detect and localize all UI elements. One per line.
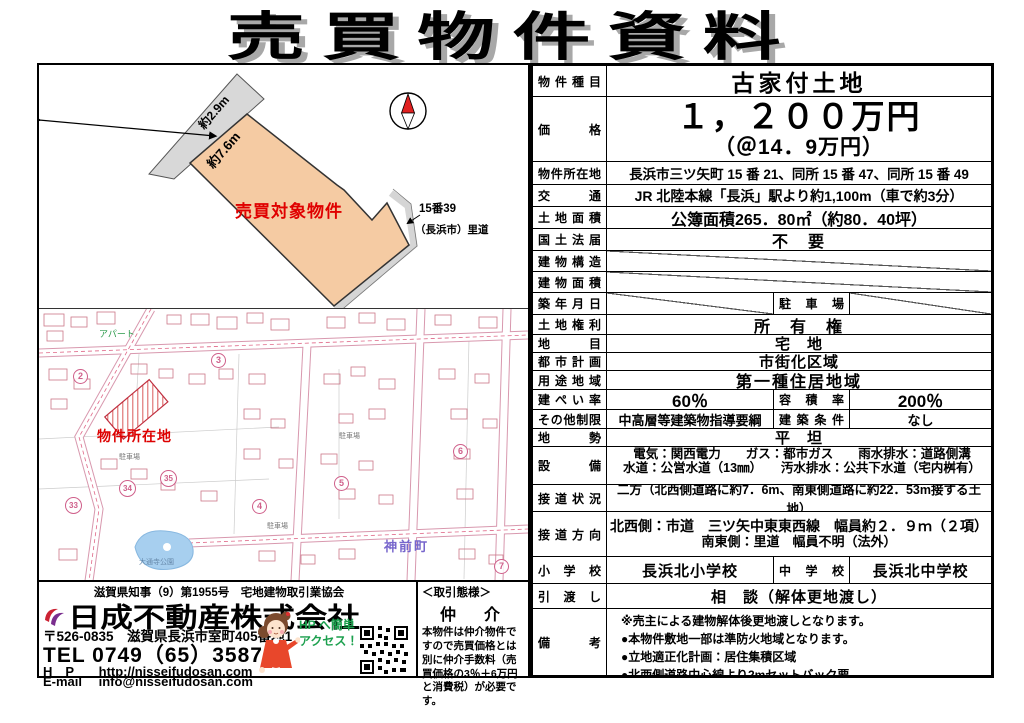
property-type-label: 物件種目: [538, 73, 601, 90]
qr-code: [360, 626, 408, 674]
row-handover: 引渡し 相 談（解体更地渡し）: [533, 584, 991, 609]
utilities-label: 設備: [538, 457, 601, 474]
remarks-line2: ●本物件敷地一部は準防火地域となります。: [621, 630, 983, 648]
property-type-label-cell: 物件種目: [533, 66, 607, 96]
utilities-line2: 水道：公営水道（13㎜） 汚水排水：公共下水道（宅内桝有）: [623, 461, 981, 475]
remarks-value-cell: ※売主による建物解体後更地渡しとなります。 ●本物件敷地一部は準防火地域となりま…: [607, 609, 991, 675]
utilities-value-cell: 電気：関西電力 ガス：都市ガス 雨水排水：道路側溝 水道：公営水道（13㎜） 汚…: [607, 447, 991, 484]
city-planning-value: 市街化区域: [607, 353, 991, 370]
land-area-label: 土地面積: [538, 209, 601, 226]
land-rights-label-cell: 土地権利: [533, 315, 607, 334]
map-property-label: 物件所在地: [97, 426, 172, 446]
land-category-label: 地目: [538, 335, 601, 352]
row-use-district: 用途地域 第一種住居地域: [533, 371, 991, 390]
hp-access-line2: アクセス！: [299, 634, 358, 650]
price-label: 価格: [538, 121, 601, 138]
road-direction-value-cell: 北西側：市道 三ツ矢中東東西線 幅員約２．９ｍ（２項） 南東側：里道 幅員不明（…: [607, 512, 991, 556]
map-parking-label-1: 駐車場: [119, 452, 140, 462]
remarks-line3: ●立地適正化計画：居住集積区域: [621, 648, 983, 666]
company-logo-icon: [42, 604, 68, 628]
mascot-girl-illustration: [252, 610, 300, 676]
elementary-school-label: 小学校: [538, 562, 601, 579]
property-type-value: 古家付土地: [607, 66, 991, 96]
agency-section: 滋賀県知事（9）第1955号 宅地建物取引業協会 日成不動産株式会社 〒526-…: [39, 582, 416, 678]
remarks-line1: ※売主による建物解体後更地渡しとなります。: [621, 612, 983, 630]
map-badge-3: 3: [211, 353, 226, 368]
property-table: 物件種目 古家付土地 価格 １，２００万円 （＠14．9万円） 物件所在地 長浜…: [530, 63, 994, 678]
location-value: 長浜市三ツ矢町 15 番 21、同所 15 番 47、同所 15 番 49: [607, 162, 991, 184]
brokerage-type: 仲 介: [422, 601, 524, 625]
coverage-label-cell: 建ぺい率: [533, 390, 607, 409]
row-remarks: 備考 ※売主による建物解体後更地渡しとなります。 ●本物件敷地一部は準防火地域と…: [533, 609, 991, 675]
access-label: 交通: [538, 187, 601, 204]
map-badge-4: 4: [252, 499, 267, 514]
remarks-label: 備考: [538, 634, 601, 651]
building-structure-label: 建物構造: [538, 253, 601, 270]
row-land-area: 土地面積 公簿面積265．80㎡（約80．40坪）: [533, 207, 991, 229]
row-city-planning: 都市計画 市街化区域: [533, 353, 991, 371]
flyer-page: 売買物件資料 約2.9m 約7.6m: [0, 0, 1024, 723]
use-district-label: 用途地域: [538, 372, 601, 389]
land-area-value: 公簿面積265．80㎡（約80．40坪）: [607, 207, 991, 228]
hp-access-note: HP へ簡単 アクセス！: [299, 618, 358, 649]
row-access: 交通 JR 北陸本線「長浜」駅より約1,100m（車で約3分）: [533, 185, 991, 207]
remarks-lines: ※売主による建物解体後更地渡しとなります。 ●本物件敷地一部は準防火地域となりま…: [615, 609, 989, 675]
left-panel: 約2.9m 約7.6m 売買対象物件 15番39 （長浜市）里道: [37, 63, 530, 678]
map-badge-35: 35: [160, 470, 177, 487]
floor-ratio-value: 200％: [850, 390, 991, 409]
title-bar: 売買物件資料: [0, 2, 1024, 62]
use-district-value: 第一種住居地域: [607, 371, 991, 389]
road-direction-label-cell: 接道方向: [533, 512, 607, 556]
building-area-label-cell: 建物面積: [533, 272, 607, 292]
parcel-label: 売買対象物件: [235, 201, 343, 221]
price-unit-value: （＠14．9万円）: [714, 136, 884, 160]
map-parking-label-2: 駐車場: [339, 431, 360, 441]
row-land-act: 国土法届 不 要: [533, 229, 991, 251]
built-date-value: [607, 293, 773, 314]
map-town-label: 神前町: [384, 536, 429, 555]
building-conditions-label-cell: 建築条件: [773, 410, 850, 428]
remarks-label-cell: 備考: [533, 609, 607, 675]
map-badge-5: 5: [334, 476, 349, 491]
road-direction-line1: 北西側：市道 三ツ矢中東東西線 幅員約２．９ｍ（２項）: [610, 518, 988, 534]
floor-ratio-label-cell: 容積率: [773, 390, 850, 409]
built-date-label: 築年月日: [538, 295, 601, 312]
map-badge-2: 2: [73, 369, 88, 384]
row-price: 価格 １，２００万円 （＠14．9万円）: [533, 97, 991, 162]
map-badge-7: 7: [494, 559, 509, 574]
map-parking-label-3: 駐車場: [267, 521, 288, 531]
location-label-cell: 物件所在地: [533, 162, 607, 184]
compass-icon: [390, 93, 426, 129]
use-district-label-cell: 用途地域: [533, 371, 607, 389]
floor-ratio-label: 容積率: [779, 391, 844, 408]
map-badge-33: 33: [65, 497, 82, 514]
location-label: 物件所在地: [538, 165, 601, 182]
road-frontage-label-cell: 接道状況: [533, 485, 607, 511]
row-coverage-ratio: 建ぺい率 60％ 容積率 200％: [533, 390, 991, 410]
plot-diagram-svg: 約2.9m 約7.6m 売買対象物件 15番39 （長浜市）里道: [39, 65, 528, 308]
row-utilities: 設備 電気：関西電力 ガス：都市ガス 雨水排水：道路側溝 水道：公営水道（13㎜…: [533, 447, 991, 485]
land-rights-value: 所 有 権: [607, 315, 991, 334]
row-building-area: 建物面積: [533, 272, 991, 293]
building-area-value: [607, 272, 991, 292]
handover-label: 引渡し: [538, 588, 601, 605]
handover-value: 相 談（解体更地渡し）: [607, 584, 991, 608]
parking-label-cell: 駐車場: [773, 293, 850, 314]
email-address: info@nisseifudosan.com: [99, 674, 253, 689]
access-value: JR 北陸本線「長浜」駅より約1,100m（車で約3分）: [607, 185, 991, 206]
row-property-type: 物件種目 古家付土地: [533, 66, 991, 97]
row-terrain: 地勢 平 坦: [533, 429, 991, 447]
price-value: １，２００万円: [677, 98, 922, 136]
plot-diagram: 約2.9m 約7.6m 売買対象物件 15番39 （長浜市）里道: [39, 65, 528, 308]
building-area-label: 建物面積: [538, 274, 601, 291]
ridou-number-label: 15番39: [419, 201, 456, 215]
location-map: 物件所在地 神前町 アパート 大通寺公園 駐車場 駐車場 駐車場 2 3 4 5…: [39, 308, 528, 580]
row-land-category: 地目 宅 地: [533, 335, 991, 353]
bottom-strip: 滋賀県知事（9）第1955号 宅地建物取引業協会 日成不動産株式会社 〒526-…: [39, 580, 528, 676]
land-act-value: 不 要: [607, 229, 991, 250]
row-road-frontage: 接道状況 二方（北西側道路に約7．6m、南東側道路に約22．53m接する土地）: [533, 485, 991, 512]
row-location: 物件所在地 長浜市三ツ矢町 15 番 21、同所 15 番 47、同所 15 番…: [533, 162, 991, 185]
building-structure-value: [607, 251, 991, 271]
utilities-line1: 電気：関西電力 ガス：都市ガス 雨水排水：道路側溝: [633, 447, 971, 461]
road-direction-label: 接道方向: [538, 526, 601, 543]
land-category-value: 宅 地: [607, 335, 991, 352]
building-conditions-label: 建築条件: [779, 411, 844, 428]
junior-high-label-cell: 中学校: [773, 557, 850, 583]
road-width-arrow: [39, 120, 215, 136]
elementary-school-value: 長浜北小学校: [607, 557, 773, 583]
map-badge-34: 34: [119, 480, 136, 497]
parking-value: [850, 293, 991, 314]
terrain-label: 地勢: [538, 429, 601, 446]
map-apartment-label: アパート: [99, 327, 135, 340]
coverage-value: 60％: [607, 390, 773, 409]
junior-high-value: 長浜北中学校: [850, 557, 991, 583]
land-area-label-cell: 土地面積: [533, 207, 607, 228]
brokerage-note: 本物件は仲介物件ですので売買価格とは別に仲介手数料（売買価格の3％＋6万円と消費…: [422, 626, 524, 709]
page-title: 売買物件資料: [227, 0, 798, 70]
terrain-label-cell: 地勢: [533, 429, 607, 446]
row-other-restrictions: その他制限 中高層等建築物指導要綱 建築条件 なし: [533, 410, 991, 429]
coverage-label: 建ぺい率: [538, 391, 601, 408]
price-label-cell: 価格: [533, 97, 607, 161]
ridou-owner-label: （長浜市）里道: [415, 223, 489, 236]
land-rights-label: 土地権利: [538, 316, 601, 333]
road-direction-line2: 南東側：里道 幅員不明（法外）: [701, 535, 896, 550]
other-restrictions-value: 中高層等建築物指導要綱: [607, 410, 773, 428]
row-schools: 小学校 長浜北小学校 中学校 長浜北中学校: [533, 557, 991, 584]
land-act-label-cell: 国土法届: [533, 229, 607, 250]
other-restrictions-label-cell: その他制限: [533, 410, 607, 428]
land-act-label: 国土法届: [538, 231, 601, 248]
junior-high-label: 中学校: [779, 562, 844, 579]
remarks-line4: ●北西側道路中心線より2mセットバック要。: [621, 666, 983, 675]
land-category-label-cell: 地目: [533, 335, 607, 352]
row-building-structure: 建物構造: [533, 251, 991, 272]
email-label: E-mail: [43, 674, 95, 689]
brokerage-box: ＜取引態様＞ 仲 介 本物件は仲介物件ですので売買価格とは別に仲介手数料（売買価…: [416, 582, 528, 678]
building-structure-label-cell: 建物構造: [533, 251, 607, 271]
access-label-cell: 交通: [533, 185, 607, 206]
row-land-rights: 土地権利 所 有 権: [533, 315, 991, 335]
utilities-label-cell: 設備: [533, 447, 607, 484]
elementary-school-label-cell: 小学校: [533, 557, 607, 583]
map-badge-6: 6: [453, 444, 468, 459]
parking-label: 駐車場: [779, 295, 844, 312]
road-frontage-value: 二方（北西側道路に約7．6m、南東側道路に約22．53m接する土地）: [607, 485, 991, 511]
road-frontage-label: 接道状況: [538, 490, 601, 507]
row-road-direction: 接道方向 北西側：市道 三ツ矢中東東西線 幅員約２．９ｍ（２項） 南東側：里道 …: [533, 512, 991, 557]
company-email: E-mail info@nisseifudosan.com: [43, 674, 253, 689]
row-built-date: 築年月日 駐車場: [533, 293, 991, 315]
hp-access-line1: HP へ簡単: [299, 618, 358, 634]
handover-label-cell: 引渡し: [533, 584, 607, 608]
brokerage-header: ＜取引態様＞: [422, 584, 524, 600]
terrain-value: 平 坦: [607, 429, 991, 446]
built-date-label-cell: 築年月日: [533, 293, 607, 314]
map-park-label: 大通寺公園: [139, 557, 174, 567]
building-conditions-value: なし: [850, 410, 991, 428]
other-restrictions-label: その他制限: [538, 411, 601, 428]
city-planning-label-cell: 都市計画: [533, 353, 607, 370]
city-planning-label: 都市計画: [538, 353, 601, 370]
price-value-cell: １，２００万円 （＠14．9万円）: [607, 97, 991, 161]
